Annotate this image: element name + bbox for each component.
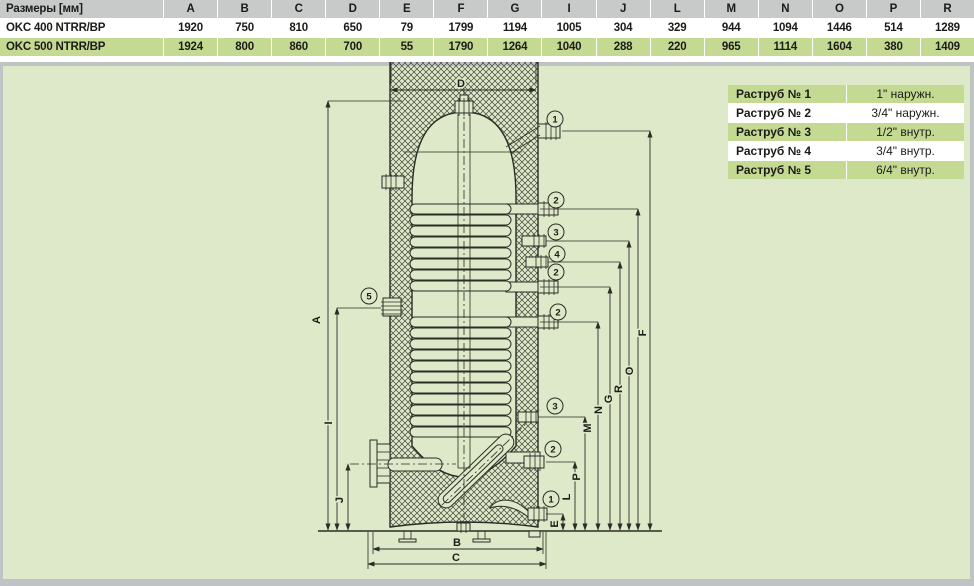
dim-value: 1264 — [488, 38, 541, 56]
col-header: N — [759, 0, 812, 18]
dim-label-N: N — [593, 406, 605, 414]
dim-label-F: F — [637, 329, 649, 336]
svg-text:3: 3 — [553, 228, 558, 239]
svg-text:1: 1 — [548, 495, 554, 506]
callout-2: 2 — [545, 441, 561, 457]
dim-value: 860 — [272, 38, 325, 56]
socket-label: Раструб № 1 — [728, 85, 846, 103]
dim-value: 1799 — [434, 19, 487, 37]
dim-value: 220 — [651, 38, 704, 56]
dim-label-G: G — [603, 395, 615, 404]
col-header: I — [542, 0, 595, 18]
col-header: D — [326, 0, 379, 18]
svg-text:1: 1 — [552, 115, 558, 126]
dim-value: 329 — [651, 19, 704, 37]
dim-label-E: E — [549, 520, 561, 527]
dim-label-A: A — [311, 316, 323, 324]
dim-value: 1194 — [488, 19, 541, 37]
dim-label-I: I — [323, 421, 335, 424]
dim-value: 1409 — [921, 38, 974, 56]
dim-label-L: L — [561, 493, 573, 500]
dim-value: 1924 — [164, 38, 217, 56]
col-header: O — [813, 0, 866, 18]
svg-text:2: 2 — [553, 196, 558, 207]
dim-value: 1114 — [759, 38, 812, 56]
dim-value: 1920 — [164, 19, 217, 37]
model-name: OKC 400 NTRR/BP — [0, 19, 163, 37]
dim-value: 1289 — [921, 19, 974, 37]
dim-value: 750 — [218, 19, 271, 37]
socket-value: 1/2" внутр. — [847, 123, 964, 141]
dim-value: 79 — [380, 19, 433, 37]
socket-label: Раструб № 5 — [728, 161, 846, 179]
socket-value: 6/4" внутр. — [847, 161, 964, 179]
dim-label-C: C — [452, 552, 460, 564]
dim-value: 514 — [867, 19, 920, 37]
dim-label-J: J — [334, 497, 346, 503]
dim-value: 380 — [867, 38, 920, 56]
col-header: P — [867, 0, 920, 18]
dim-label-M: M — [582, 423, 594, 432]
dim-value: 800 — [218, 38, 271, 56]
dim-value: 1094 — [759, 19, 812, 37]
svg-text:3: 3 — [552, 402, 557, 413]
callout-1: 1 — [543, 491, 559, 507]
callout-2: 2 — [548, 192, 564, 208]
col-header: F — [434, 0, 487, 18]
dim-value: 1446 — [813, 19, 866, 37]
svg-text:2: 2 — [555, 308, 560, 319]
dim-value: 1604 — [813, 38, 866, 56]
dim-label-D: D — [457, 78, 465, 90]
dim-value: 944 — [705, 19, 758, 37]
dim-label-B: B — [453, 537, 461, 549]
dim-value: 965 — [705, 38, 758, 56]
dim-value: 650 — [326, 19, 379, 37]
dim-value: 304 — [597, 19, 650, 37]
callout-2: 2 — [550, 304, 566, 320]
central-tube — [458, 88, 470, 518]
dim-value: 288 — [597, 38, 650, 56]
socket-label: Раструб № 2 — [728, 104, 846, 122]
dim-label-P: P — [571, 473, 583, 480]
col-header: R — [921, 0, 974, 18]
svg-text:2: 2 — [550, 445, 555, 456]
dimensions-table-corner: Размеры [мм] — [0, 0, 163, 18]
col-header: E — [380, 0, 433, 18]
model-name: OKC 500 NTRR/BP — [0, 38, 163, 56]
svg-text:5: 5 — [366, 292, 372, 303]
col-header: M — [705, 0, 758, 18]
dim-value: 1040 — [542, 38, 595, 56]
dim-value: 1790 — [434, 38, 487, 56]
svg-text:2: 2 — [553, 268, 558, 279]
callout-3: 3 — [547, 398, 563, 414]
col-header: G — [488, 0, 541, 18]
dim-label-R: R — [613, 385, 625, 393]
col-header: A — [164, 0, 217, 18]
socket-label: Раструб № 3 — [728, 123, 846, 141]
col-header: J — [597, 0, 650, 18]
dimensions-table: Размеры [мм] A B C D E F G I J L M N O P… — [0, 0, 974, 56]
col-header: B — [218, 0, 271, 18]
callout-1: 1 — [547, 111, 563, 127]
svg-text:4: 4 — [554, 250, 560, 261]
socket-value: 3/4" внутр. — [847, 142, 964, 160]
col-header: L — [651, 0, 704, 18]
callout-3: 3 — [548, 224, 564, 240]
callout-2: 2 — [548, 264, 564, 280]
dim-value: 1005 — [542, 19, 595, 37]
callout-5: 5 — [361, 288, 377, 304]
dim-label-O: O — [624, 366, 636, 375]
sockets-table: Раструб № 1 1" наружн. Раструб № 2 3/4" … — [728, 85, 964, 179]
dim-value: 700 — [326, 38, 379, 56]
socket-value: 3/4" наружн. — [847, 104, 964, 122]
dim-value: 810 — [272, 19, 325, 37]
callout-4: 4 — [549, 246, 565, 262]
col-header: C — [272, 0, 325, 18]
dim-value: 55 — [380, 38, 433, 56]
socket-label: Раструб № 4 — [728, 142, 846, 160]
socket-value: 1" наружн. — [847, 85, 964, 103]
